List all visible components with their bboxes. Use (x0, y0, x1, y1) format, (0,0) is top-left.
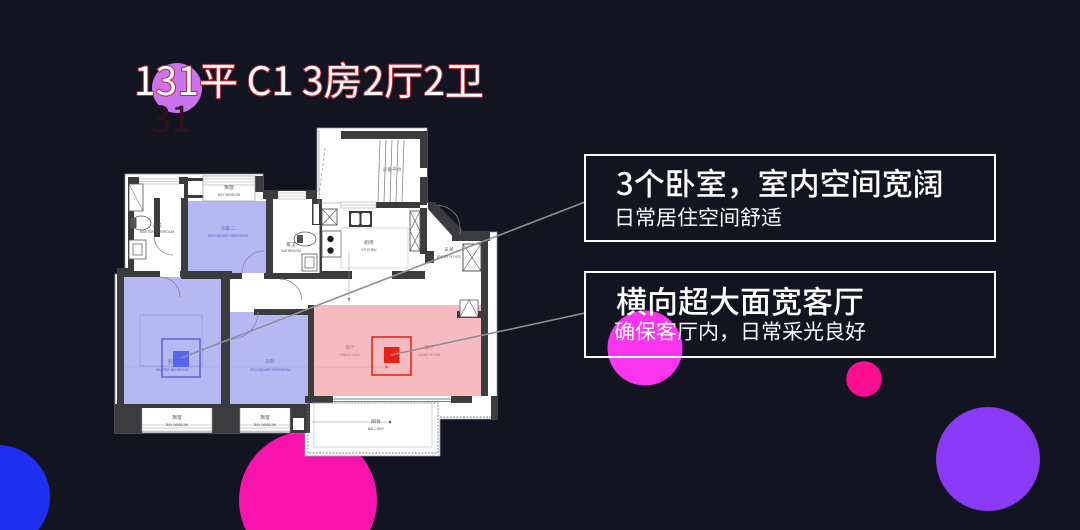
svg-text:BAY WINDOW: BAY WINDOW (166, 423, 189, 427)
svg-text:MASTER BATHROOM: MASTER BATHROOM (140, 230, 175, 234)
svg-text:BAY WINDOW: BAY WINDOW (254, 423, 277, 427)
svg-text:BATHROOM: BATHROOM (281, 249, 301, 253)
svg-text:BALCONY: BALCONY (368, 427, 385, 431)
svg-text:SECONDARY BEDROOM: SECONDARY BEDROOM (208, 234, 248, 238)
svg-text:ENTRY FOYER: ENTRY FOYER (437, 255, 462, 259)
svg-text:MASTER BEDROOM: MASTER BEDROOM (156, 368, 189, 372)
svg-text:DINING HALL: DINING HALL (339, 353, 360, 357)
svg-text:SECONDARY BEDROOM: SECONDARY BEDROOM (250, 368, 290, 372)
svg-text:KITCHEN: KITCHEN (362, 248, 377, 252)
svg-text:BAY WINDOW: BAY WINDOW (218, 193, 241, 197)
svg-text:LIVING ROOM: LIVING ROOM (418, 353, 441, 357)
